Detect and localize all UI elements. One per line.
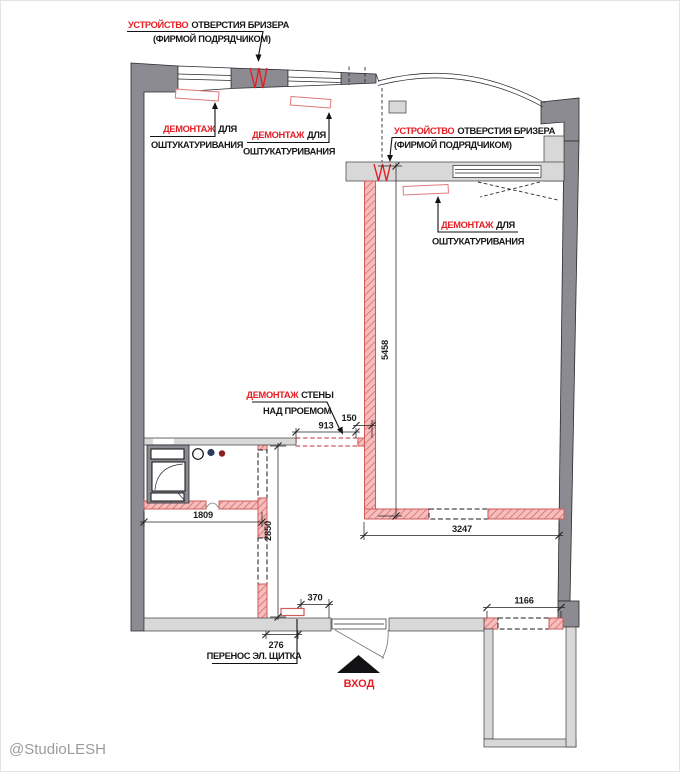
entrance-arrow-icon bbox=[337, 655, 380, 673]
balcony-door-swing bbox=[478, 182, 558, 200]
dimension-913: 913 bbox=[319, 421, 334, 431]
entrance-door bbox=[332, 619, 388, 659]
top-wall-pier-2 bbox=[341, 73, 376, 85]
annotation-text: ДЕМОНТАЖДЛЯ bbox=[441, 220, 515, 230]
cold-water-riser bbox=[207, 449, 214, 456]
annotation-demo-plaster-1: ДЕМОНТАЖДЛЯ ОШТУКАТУРИВАНИЯ bbox=[150, 102, 244, 150]
dimension-1809: 1809 bbox=[193, 510, 213, 520]
kitchen-wall-arc bbox=[206, 503, 219, 508]
vent-shaft bbox=[147, 445, 189, 503]
leader-arrowhead bbox=[326, 112, 332, 119]
right-wall bbox=[558, 141, 579, 601]
leader-arrowhead bbox=[337, 427, 343, 435]
door-swing-arc bbox=[382, 630, 388, 659]
annotation-demo-plaster-3: ДЕМОНТАЖДЛЯ ОШТУКАТУРИВАНИЯ bbox=[432, 196, 525, 247]
dimension-3247: 3247 bbox=[452, 524, 472, 534]
annotation-text: НАД ПРОЕМОМ bbox=[263, 406, 332, 416]
electrical-panel-box bbox=[281, 609, 304, 616]
balcony-wall-stub bbox=[389, 101, 406, 113]
hall-door-opening bbox=[258, 538, 267, 584]
wall-remainder-150 bbox=[358, 438, 365, 446]
bottom-wall-left bbox=[144, 618, 331, 631]
annotation-text: УСТРОЙСТВООТВЕРСТИЯ БРИЗЕРА bbox=[394, 125, 556, 136]
annotation-text: ДЕМОНТАЖДЛЯ bbox=[163, 124, 237, 134]
annotation-text: (ФИРМОЙ ПОДРЯДЧИКОМ) bbox=[394, 139, 512, 150]
annotation-text: ОШТУКАТУРИВАНИЯ bbox=[432, 237, 525, 247]
door-swing-line bbox=[335, 630, 384, 658]
radiator-1 bbox=[175, 89, 219, 101]
annotation-text: ДЕМОНТАЖДЛЯ bbox=[252, 130, 326, 140]
room-door-opening bbox=[429, 509, 488, 519]
balcony-window bbox=[453, 166, 541, 178]
balcony-room-opening bbox=[498, 618, 549, 629]
leader-arrowhead bbox=[212, 102, 218, 109]
annotation-demo-plaster-2: ДЕМОНТАЖДЛЯ ОШТУКАТУРИВАНИЯ bbox=[243, 112, 336, 157]
leader-arrowhead bbox=[435, 196, 441, 203]
demolition-walls bbox=[144, 181, 564, 629]
leader-arrowhead bbox=[256, 55, 262, 63]
annotation-text: ОШТУКАТУРИВАНИЯ bbox=[243, 147, 336, 157]
annotation-breather-top: УСТРОЙСТВООТВЕРСТИЯ БРИЗЕРА (ФИРМОЙ ПОДР… bbox=[127, 19, 290, 62]
hot-water-riser bbox=[219, 450, 225, 456]
annotation-text: ОШТУКАТУРИВАНИЯ bbox=[151, 140, 244, 150]
entrance-label: ВХОД bbox=[344, 678, 375, 690]
water-risers bbox=[193, 449, 226, 460]
wall-over-opening-demolition bbox=[296, 438, 358, 446]
dimension-150: 150 bbox=[342, 413, 357, 423]
dimension-2850: 2850 bbox=[263, 521, 273, 541]
dimension-1166: 1166 bbox=[514, 596, 533, 606]
radiator-2 bbox=[290, 97, 331, 109]
kitchen-door-opening bbox=[258, 450, 267, 498]
annotation-text: (ФИРМОЙ ПОДРЯДЧИКОМ) bbox=[153, 33, 271, 44]
annotation-text: УСТРОЙСТВООТВЕРСТИЯ БРИЗЕРА bbox=[128, 19, 290, 30]
dimension-370: 370 bbox=[308, 593, 323, 603]
floor-plan-page: УСТРОЙСТВООТВЕРСТИЯ БРИЗЕРА (ФИРМОЙ ПОДР… bbox=[0, 0, 680, 772]
annotation-text: ДЕМОНТАЖСТЕНЫ bbox=[246, 390, 333, 400]
bottom-wall-right bbox=[389, 618, 484, 631]
lower-balcony-room bbox=[484, 627, 576, 747]
annotation-breather-right: УСТРОЙСТВООТВЕРСТИЯ БРИЗЕРА (ФИРМОЙ ПОДР… bbox=[387, 125, 556, 162]
floor-plan-drawing: УСТРОЙСТВООТВЕРСТИЯ БРИЗЕРА (ФИРМОЙ ПОДР… bbox=[1, 1, 680, 772]
radiator-3 bbox=[403, 185, 449, 196]
entrance-mark: ВХОД bbox=[337, 655, 380, 690]
main-partition-wall bbox=[365, 181, 376, 519]
leader-arrowhead bbox=[387, 155, 393, 162]
sewer-riser bbox=[193, 449, 204, 460]
dimension-5458: 5458 bbox=[380, 340, 390, 360]
annotation-text: ПЕРЕНОС ЭЛ. ЩИТКА bbox=[207, 651, 302, 661]
watermark: @StudioLESH bbox=[9, 741, 106, 758]
dimension-276: 276 bbox=[269, 640, 284, 650]
